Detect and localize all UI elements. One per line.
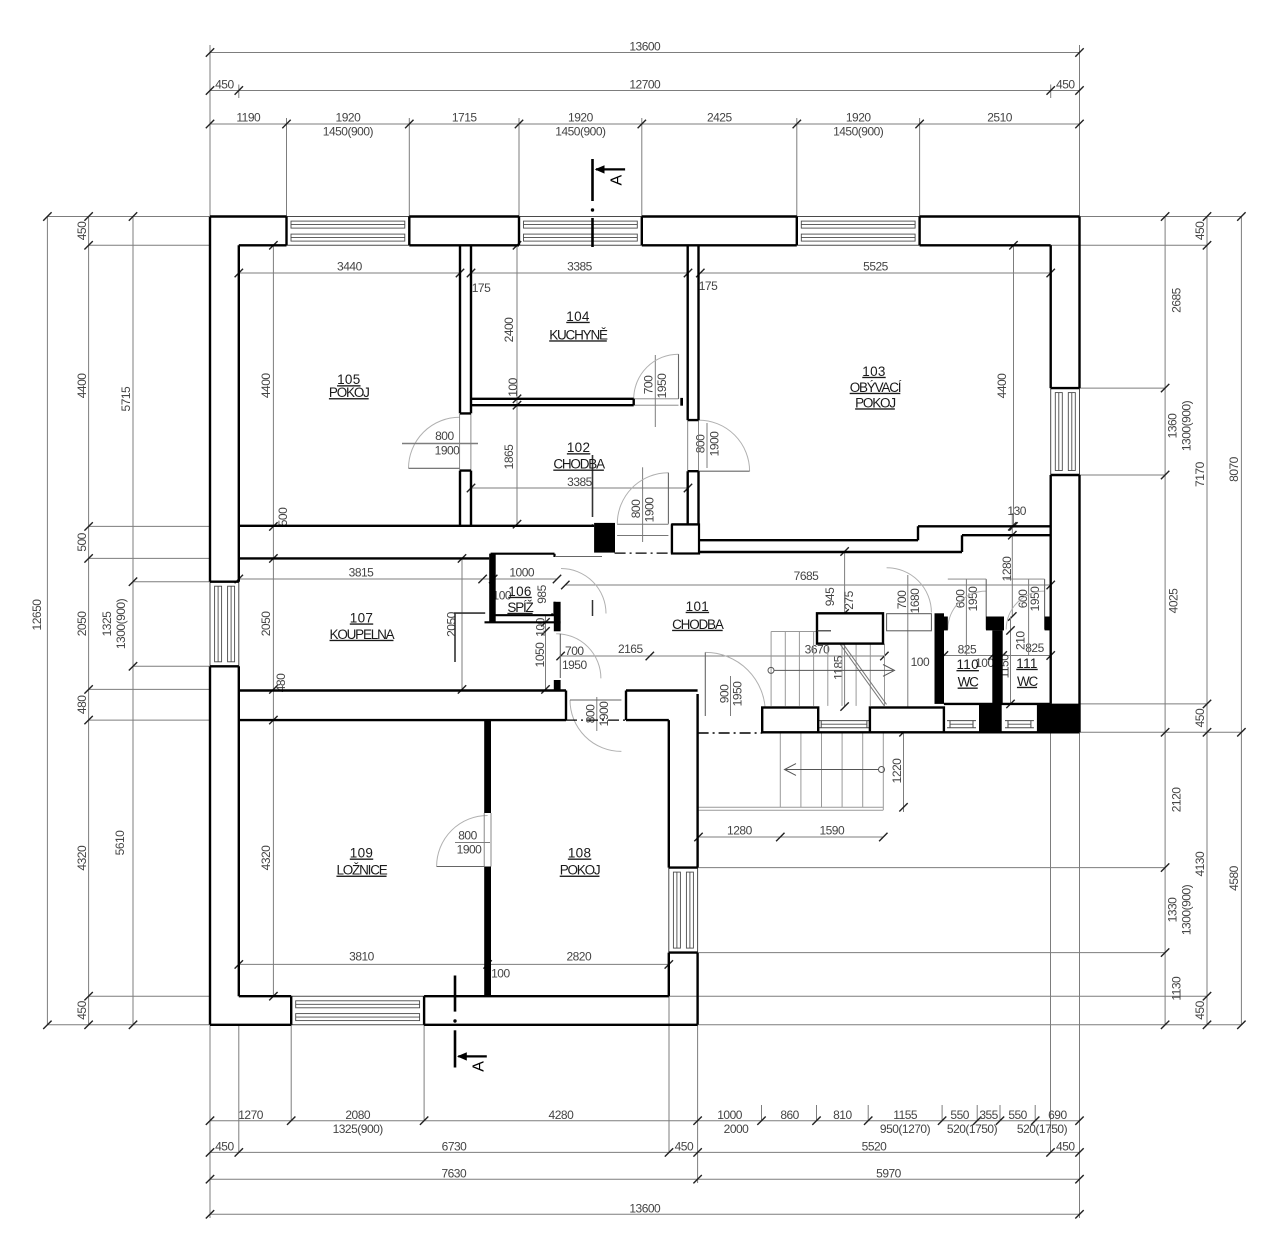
svg-text:8070: 8070	[1227, 456, 1241, 482]
svg-text:450: 450	[1193, 1000, 1207, 1019]
svg-text:POKOJ: POKOJ	[329, 385, 369, 400]
svg-text:106: 106	[508, 584, 531, 599]
svg-text:4320: 4320	[259, 845, 273, 871]
svg-text:WC: WC	[958, 675, 980, 690]
svg-text:450: 450	[1193, 708, 1207, 727]
svg-text:1900: 1900	[597, 701, 611, 727]
svg-text:450: 450	[75, 221, 89, 240]
svg-text:4580: 4580	[1227, 865, 1241, 891]
svg-text:1300(900): 1300(900)	[1180, 884, 1194, 935]
svg-text:450: 450	[215, 78, 234, 92]
svg-text:4320: 4320	[75, 845, 89, 871]
svg-text:500: 500	[276, 507, 290, 526]
svg-text:1280: 1280	[1000, 556, 1014, 582]
svg-text:1950: 1950	[655, 373, 669, 399]
svg-text:520(1750): 520(1750)	[1017, 1122, 1068, 1136]
svg-text:900: 900	[718, 684, 732, 703]
svg-text:1450(900): 1450(900)	[555, 125, 606, 139]
svg-text:810: 810	[833, 1108, 852, 1122]
svg-text:100: 100	[534, 617, 548, 636]
svg-text:3385: 3385	[567, 260, 593, 274]
svg-text:1050: 1050	[533, 642, 547, 668]
svg-text:5525: 5525	[863, 260, 889, 274]
svg-text:450: 450	[215, 1140, 234, 1154]
svg-text:5610: 5610	[113, 830, 127, 856]
svg-text:7170: 7170	[1193, 461, 1207, 487]
svg-text:175: 175	[472, 281, 491, 295]
svg-text:4280: 4280	[549, 1108, 575, 1122]
svg-text:POKOJ: POKOJ	[560, 863, 600, 878]
svg-text:1900: 1900	[435, 444, 461, 458]
svg-text:110: 110	[956, 657, 978, 672]
svg-text:1920: 1920	[568, 111, 594, 125]
svg-text:KUCHYNĚ: KUCHYNĚ	[549, 327, 608, 342]
svg-text:480: 480	[75, 695, 89, 714]
svg-text:1715: 1715	[452, 111, 478, 125]
svg-text:520(1750): 520(1750)	[947, 1122, 998, 1136]
svg-text:825: 825	[958, 643, 977, 657]
svg-text:2050: 2050	[259, 611, 273, 637]
svg-text:3385: 3385	[567, 475, 593, 489]
svg-text:100: 100	[506, 377, 520, 396]
svg-text:100: 100	[911, 655, 930, 669]
svg-text:WC: WC	[1017, 674, 1039, 689]
svg-text:1130: 1130	[1170, 976, 1184, 1001]
svg-text:1450(900): 1450(900)	[323, 125, 374, 139]
svg-text:355: 355	[979, 1108, 998, 1122]
svg-text:800: 800	[629, 499, 643, 518]
svg-text:6730: 6730	[442, 1140, 468, 1154]
svg-text:1280: 1280	[727, 824, 753, 838]
svg-text:1000: 1000	[717, 1108, 743, 1122]
svg-text:103: 103	[862, 364, 885, 379]
svg-text:OBÝVACÍ: OBÝVACÍ	[850, 380, 902, 395]
svg-text:1360: 1360	[1166, 413, 1180, 439]
svg-text:4025: 4025	[1167, 588, 1181, 614]
svg-text:450: 450	[1056, 1140, 1075, 1154]
svg-text:1950: 1950	[731, 681, 745, 707]
svg-text:2685: 2685	[1170, 287, 1184, 313]
svg-text:13600: 13600	[629, 1202, 661, 1216]
svg-text:1865: 1865	[502, 444, 516, 470]
svg-text:CHODBA: CHODBA	[553, 457, 605, 472]
svg-text:A: A	[471, 1061, 488, 1072]
svg-text:3815: 3815	[349, 566, 375, 580]
svg-text:107: 107	[350, 610, 373, 625]
svg-text:700: 700	[895, 590, 909, 609]
svg-text:450: 450	[1193, 221, 1207, 240]
svg-text:5970: 5970	[876, 1166, 902, 1180]
svg-text:800: 800	[458, 829, 477, 843]
svg-text:12700: 12700	[629, 78, 661, 92]
svg-text:1155: 1155	[893, 1108, 918, 1122]
svg-text:2120: 2120	[1170, 787, 1184, 813]
svg-text:12650: 12650	[30, 599, 44, 631]
svg-text:1920: 1920	[336, 111, 362, 125]
svg-text:SPÍŽ: SPÍŽ	[507, 600, 533, 615]
svg-text:2400: 2400	[502, 317, 516, 343]
svg-text:1450(900): 1450(900)	[833, 125, 884, 139]
svg-text:4130: 4130	[1193, 851, 1207, 877]
svg-text:1220: 1220	[890, 758, 904, 784]
svg-text:3440: 3440	[337, 260, 363, 274]
svg-text:108: 108	[568, 846, 591, 861]
svg-text:LOŽNICE: LOŽNICE	[336, 863, 387, 878]
svg-text:4400: 4400	[259, 373, 273, 399]
svg-text:1270: 1270	[238, 1108, 264, 1122]
svg-text:1900: 1900	[708, 431, 722, 457]
svg-text:CHODBA: CHODBA	[672, 617, 724, 632]
svg-text:1950: 1950	[966, 586, 980, 612]
svg-text:2165: 2165	[618, 642, 644, 656]
svg-text:450: 450	[675, 1140, 694, 1154]
svg-text:500: 500	[75, 532, 89, 551]
svg-text:109: 109	[350, 846, 373, 861]
svg-text:2050: 2050	[75, 611, 89, 637]
svg-text:210: 210	[1014, 631, 1028, 650]
svg-text:3810: 3810	[349, 950, 375, 964]
svg-text:4400: 4400	[995, 373, 1009, 399]
svg-text:KOUPELNA: KOUPELNA	[330, 627, 395, 642]
svg-text:7630: 7630	[441, 1166, 467, 1180]
svg-text:2425: 2425	[707, 111, 733, 125]
svg-text:2510: 2510	[987, 111, 1013, 125]
svg-text:2000: 2000	[724, 1122, 750, 1136]
svg-text:2820: 2820	[566, 950, 592, 964]
svg-text:700: 700	[642, 375, 656, 394]
svg-text:1300(900): 1300(900)	[1180, 400, 1194, 451]
svg-text:860: 860	[780, 1108, 799, 1122]
svg-text:945: 945	[823, 587, 837, 606]
svg-text:130: 130	[1007, 504, 1026, 518]
svg-text:13600: 13600	[629, 39, 661, 53]
svg-text:550: 550	[1008, 1108, 1027, 1122]
svg-text:800: 800	[694, 434, 708, 453]
svg-text:1950: 1950	[562, 658, 588, 672]
svg-text:690: 690	[1048, 1108, 1067, 1122]
svg-text:1000: 1000	[509, 566, 535, 580]
svg-text:550: 550	[950, 1108, 969, 1122]
svg-text:1950: 1950	[1028, 586, 1042, 612]
svg-text:800: 800	[435, 429, 454, 443]
svg-text:1325(900): 1325(900)	[333, 1122, 384, 1136]
svg-text:1325: 1325	[100, 611, 114, 637]
svg-text:1900: 1900	[643, 497, 657, 523]
svg-text:175: 175	[699, 279, 718, 293]
svg-text:101: 101	[686, 599, 709, 614]
svg-text:POKOJ: POKOJ	[855, 395, 895, 410]
svg-text:1300(900): 1300(900)	[114, 598, 128, 649]
svg-text:A: A	[609, 174, 626, 185]
svg-text:2080: 2080	[345, 1108, 371, 1122]
svg-text:1900: 1900	[457, 843, 483, 857]
svg-text:5715: 5715	[119, 386, 133, 412]
svg-text:104: 104	[566, 309, 590, 324]
svg-text:111: 111	[1016, 656, 1037, 671]
svg-text:1590: 1590	[819, 824, 845, 838]
svg-text:5520: 5520	[862, 1140, 888, 1154]
svg-text:1680: 1680	[908, 588, 922, 614]
svg-text:275: 275	[842, 590, 856, 609]
svg-text:2050: 2050	[445, 611, 459, 637]
svg-text:4400: 4400	[75, 373, 89, 399]
svg-text:1190: 1190	[236, 111, 261, 125]
svg-text:950(1270): 950(1270)	[880, 1122, 931, 1136]
svg-text:7685: 7685	[794, 569, 820, 583]
svg-text:1185: 1185	[832, 655, 846, 680]
svg-text:450: 450	[75, 1000, 89, 1019]
svg-text:700: 700	[565, 644, 584, 658]
svg-text:985: 985	[535, 584, 549, 603]
svg-text:100: 100	[491, 967, 510, 981]
svg-text:1330: 1330	[1166, 897, 1180, 923]
svg-text:450: 450	[1056, 78, 1075, 92]
svg-text:1920: 1920	[846, 111, 872, 125]
svg-text:102: 102	[567, 440, 590, 455]
